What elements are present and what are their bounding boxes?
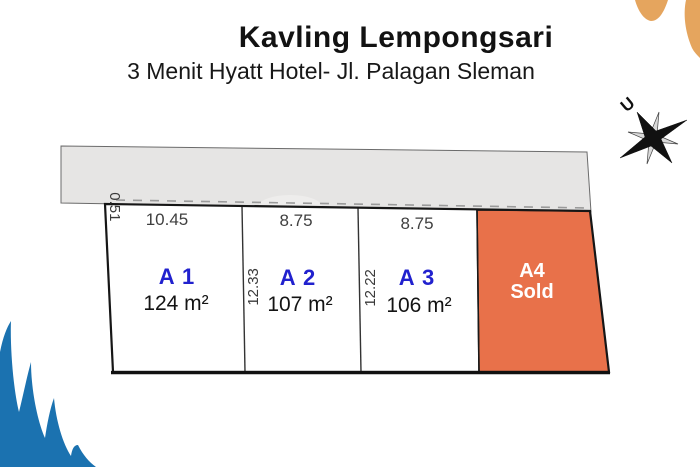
compass-icon bbox=[620, 112, 687, 164]
dimension-a1-width: 10.45 bbox=[117, 211, 217, 229]
plot-a1-name: A 1 bbox=[107, 265, 247, 288]
corner-blob-left bbox=[635, 0, 668, 21]
plot-a4-status: Sold bbox=[476, 282, 588, 303]
page-title: Kavling Lempongsari bbox=[214, 22, 578, 54]
plot-a1-area: 124 m² bbox=[106, 293, 246, 315]
plot-a3-area: 106 m² bbox=[349, 295, 489, 317]
road-shape bbox=[61, 146, 591, 212]
site-plan-flyer: Kavling Lempongsari 3 Menit Hyatt Hotel-… bbox=[0, 0, 700, 467]
plot-a4-label: A4 Sold bbox=[476, 261, 588, 303]
corner-wave-decoration bbox=[0, 321, 96, 467]
compass-main-points bbox=[620, 112, 687, 163]
plot-a4-name: A4 bbox=[476, 261, 588, 282]
dimension-a3-width: 8.75 bbox=[367, 215, 467, 233]
plot-a3-name: A 3 bbox=[347, 266, 487, 289]
dimension-a2-width: 8.75 bbox=[246, 212, 346, 230]
page-subtitle: 3 Menit Hyatt Hotel- Jl. Palagan Sleman bbox=[85, 59, 577, 83]
corner-blob-right bbox=[685, 0, 700, 58]
